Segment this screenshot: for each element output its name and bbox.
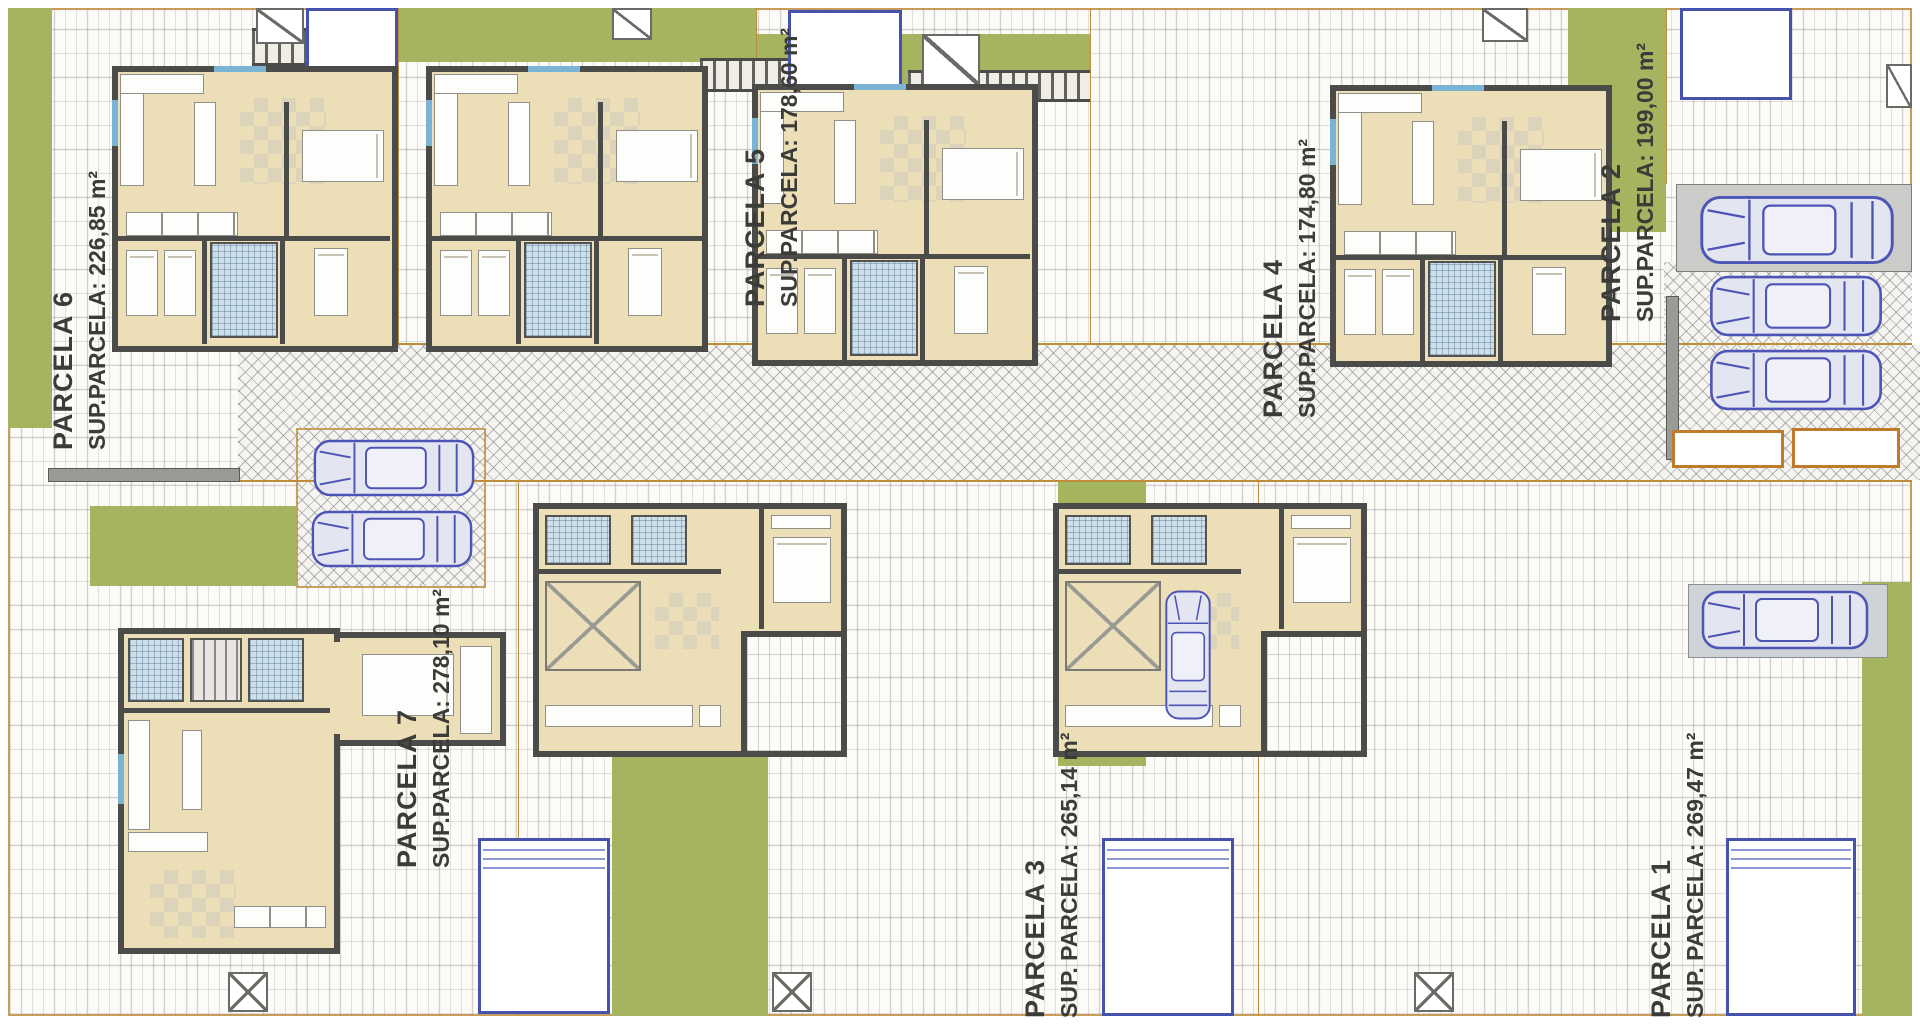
car-icon <box>312 436 476 500</box>
interior-wall <box>124 708 334 713</box>
bed <box>1520 149 1602 201</box>
interior-wall <box>924 120 929 259</box>
boundary-line <box>1666 8 1667 184</box>
parcel-name: PARCELA 7 <box>392 606 423 868</box>
green-area <box>90 506 302 586</box>
utility-marker-icon <box>922 34 980 86</box>
double-height-space <box>545 581 641 671</box>
fridge <box>699 705 721 727</box>
pool-parcela-1 <box>1726 838 1856 1016</box>
parcel-area: SUP.PARCELA: 178,60 m² <box>776 2 803 307</box>
bathroom <box>1428 261 1496 357</box>
boundary-line <box>1090 8 1091 344</box>
car-icon <box>1692 274 1900 338</box>
bed <box>773 537 831 603</box>
bed <box>1344 269 1376 335</box>
parcel-area: SUP.PARCELA: 174,80 m² <box>1294 98 1321 418</box>
window <box>528 66 580 72</box>
bed <box>942 148 1024 200</box>
bed <box>440 250 472 316</box>
interior-wall <box>284 102 289 241</box>
interior-wall <box>1059 569 1241 574</box>
dining-table <box>655 593 719 649</box>
house-parcela-3 <box>533 503 847 757</box>
house-parcela-5 <box>426 66 708 352</box>
kitchen-island <box>508 102 530 186</box>
parcel-label-5: PARCELA 5 SUP.PARCELA: 178,60 m² <box>740 2 803 307</box>
kitchen-counter <box>434 74 518 94</box>
pool-parcela-7 <box>478 838 610 1014</box>
bathroom <box>631 515 687 565</box>
bed <box>314 248 348 316</box>
house-parcela-7 <box>118 628 340 954</box>
bed <box>1293 537 1351 603</box>
interior-wall <box>598 102 603 241</box>
window <box>118 754 124 804</box>
pool-steps <box>483 843 605 869</box>
car-icon <box>1692 194 1902 266</box>
parcel-label-2: PARCELA 2 SUP.PARCELA: 199,00 m² <box>1596 2 1659 322</box>
interior-wall <box>1279 509 1284 629</box>
house-parcela-6 <box>112 66 398 352</box>
bed <box>126 250 158 316</box>
utility-marker-icon <box>1414 972 1454 1012</box>
utility-marker-icon <box>228 972 268 1012</box>
sofa <box>126 212 238 236</box>
parcel-area: SUP.PARCELA: 278,10 m² <box>428 606 455 868</box>
dining-table <box>150 870 236 938</box>
kitchen-island <box>1412 121 1434 205</box>
interior-wall <box>1502 121 1507 260</box>
pool-steps <box>1107 843 1229 869</box>
house-parcela-2 <box>1330 85 1612 367</box>
parcel-area: SUP.PARCELA: 199,00 m² <box>1632 2 1659 322</box>
car-icon <box>1164 589 1212 721</box>
window <box>854 84 906 90</box>
interior-wall <box>516 236 521 344</box>
sofa <box>234 906 326 928</box>
interior-wall <box>1498 255 1503 363</box>
interior-wall <box>1420 255 1425 363</box>
kitchen-counter <box>128 720 150 830</box>
planter <box>1792 428 1900 468</box>
double-height-space <box>1065 581 1161 671</box>
site-plan: PARCELA 6 SUP.PARCELA: 226,85 m² PARCELA… <box>0 0 1920 1024</box>
green-area <box>612 756 768 1016</box>
bed <box>478 250 510 316</box>
interior-wall <box>920 254 925 362</box>
car-icon <box>310 508 474 570</box>
window <box>1330 119 1336 165</box>
kitchen-counter <box>1338 93 1422 113</box>
bed <box>804 268 836 334</box>
stairs <box>190 638 242 702</box>
utility-marker-icon <box>1482 8 1528 42</box>
bed <box>616 130 698 182</box>
window <box>426 100 432 146</box>
wall-junction <box>330 642 344 734</box>
bathroom <box>248 638 304 702</box>
car-icon <box>1700 588 1870 652</box>
parcel-name: PARCELA 3 <box>1020 738 1051 1018</box>
bed <box>1382 269 1414 335</box>
utility-marker-icon <box>1886 64 1912 108</box>
porch-cutout <box>741 631 841 751</box>
porch-cutout <box>1261 631 1361 751</box>
interior-wall <box>202 236 207 344</box>
parcel-area: SUP. PARCELA: 265,14 m² <box>1056 738 1083 1018</box>
wardrobe <box>1291 515 1351 529</box>
bed <box>1532 267 1566 335</box>
parcel-name: PARCELA 5 <box>740 2 771 307</box>
parcel-label-3: PARCELA 3 SUP. PARCELA: 265,14 m² <box>1020 738 1083 1018</box>
window <box>1432 85 1484 91</box>
planter <box>1672 430 1784 468</box>
kitchen-counter <box>128 832 208 852</box>
bed <box>954 266 988 334</box>
parcel-area: SUP.PARCELA: 226,85 m² <box>84 135 111 450</box>
parcel-label-1: PARCELA 1 SUP. PARCELA: 269,47 m² <box>1646 732 1709 1018</box>
parcel-name: PARCELA 1 <box>1646 732 1677 1018</box>
bathroom <box>1151 515 1207 565</box>
bathroom <box>850 260 918 356</box>
parcel-name: PARCELA 6 <box>48 135 79 450</box>
parcel-name: PARCELA 4 <box>1258 98 1289 418</box>
bathroom <box>128 638 184 702</box>
kitchen-counter <box>545 705 693 727</box>
wardrobe <box>771 515 831 529</box>
interior-wall <box>1336 255 1608 260</box>
car-icon <box>1692 348 1900 412</box>
interior-wall <box>118 236 390 241</box>
kitchen-island <box>834 120 856 204</box>
bathroom <box>524 242 592 338</box>
interior-wall <box>280 236 285 344</box>
pool-parcela-3 <box>1102 838 1234 1016</box>
interior-wall <box>759 509 764 629</box>
bed <box>628 248 662 316</box>
utility-marker-icon <box>612 8 652 40</box>
kitchen-counter <box>120 74 204 94</box>
parcel-area: SUP. PARCELA: 269,47 m² <box>1682 732 1709 1018</box>
green-area <box>8 8 52 428</box>
bed <box>302 130 384 182</box>
pool-steps <box>1731 843 1851 869</box>
interior-wall <box>432 236 704 241</box>
bathroom <box>210 242 278 338</box>
kitchen-island <box>182 730 202 810</box>
parcel-label-7: PARCELA 7 SUP.PARCELA: 278,10 m² <box>392 606 455 868</box>
wardrobe <box>460 646 492 734</box>
utility-marker-icon <box>772 972 812 1012</box>
parcel-name: PARCELA 2 <box>1596 2 1627 322</box>
boundary-line <box>398 8 399 344</box>
garden-wall <box>48 468 240 482</box>
parcel-label-4: PARCELA 4 SUP.PARCELA: 174,80 m² <box>1258 98 1321 418</box>
interior-wall <box>539 569 721 574</box>
sofa <box>1344 231 1456 255</box>
sofa <box>440 212 552 236</box>
kitchen-island <box>194 102 216 186</box>
green-area <box>398 8 756 62</box>
bed <box>164 250 196 316</box>
bathroom <box>1065 515 1131 565</box>
parcel-label-6: PARCELA 6 SUP.PARCELA: 226,85 m² <box>48 135 111 450</box>
fridge <box>1219 705 1241 727</box>
pool-parcela-2 <box>1680 8 1792 100</box>
window <box>112 100 118 146</box>
interior-wall <box>842 254 847 362</box>
bathroom <box>545 515 611 565</box>
utility-marker-icon <box>256 8 304 44</box>
window <box>214 66 266 72</box>
interior-wall <box>594 236 599 344</box>
